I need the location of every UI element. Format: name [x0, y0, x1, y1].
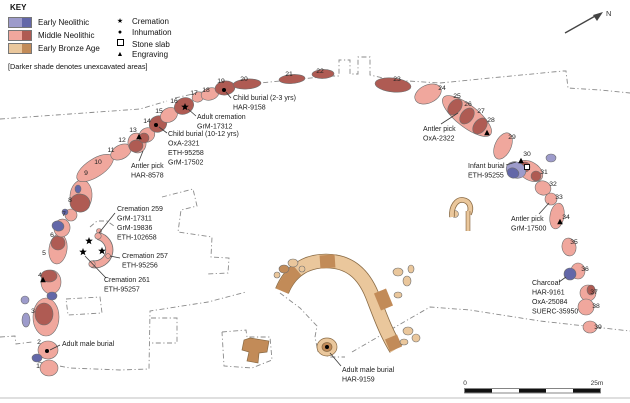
key-period-early-bronze-age: Early Bronze Age — [8, 43, 100, 54]
stone — [546, 154, 556, 162]
stone-number: 22 — [316, 68, 324, 75]
key-symbol-label: Engraving — [132, 50, 168, 59]
annotation-label: Cremation 257ETH-95256 — [122, 253, 168, 270]
stone-number: 15 — [155, 108, 163, 115]
stone-number: 1 — [36, 363, 40, 370]
trench-outline — [440, 71, 630, 93]
stone-number: 30 — [523, 151, 531, 158]
key-period-early-neolithic: Early Neolithic — [8, 17, 89, 28]
stone — [394, 292, 402, 298]
stone — [403, 276, 411, 286]
annotation-label: Infant burialETH-95255 — [468, 163, 505, 180]
inhumation-marker — [154, 123, 158, 127]
stone-number: 12 — [118, 137, 126, 144]
stone-number: 24 — [438, 85, 446, 92]
ring-terminal — [95, 233, 101, 239]
cremation-marker — [79, 248, 87, 255]
annotation-label: Child burial (10-12 yrs)OxA-2321ETH-9525… — [168, 131, 239, 167]
annotation-label: CharcoalHAR-9161OxA-25084SUERC-35950 — [532, 280, 578, 316]
stone — [288, 259, 298, 267]
stone-number: 29 — [508, 134, 516, 141]
stone-number: 4 — [38, 272, 42, 279]
trench-outline — [66, 297, 102, 315]
north-arrow — [565, 15, 597, 33]
trench-outline — [38, 292, 246, 370]
stone-number: 8 — [68, 197, 72, 204]
stone-number: 26 — [464, 101, 472, 108]
stone-number: 27 — [477, 108, 485, 115]
stone-number: 11 — [107, 147, 114, 154]
cremation-star-icon: ★ — [114, 18, 126, 26]
key-symbol-label: Stone slab — [132, 40, 170, 49]
key-period-label: Early Bronze Age — [38, 44, 100, 53]
scale-bar-segment — [519, 389, 546, 393]
stone-number: 35 — [570, 239, 578, 246]
stone — [47, 292, 57, 300]
stone-number: 28 — [487, 117, 495, 124]
stone — [40, 360, 58, 376]
stone-slab-icon — [114, 39, 126, 49]
key-symbol-label: Inhumation — [132, 28, 172, 37]
scale-bar-segment — [465, 389, 492, 393]
stone — [400, 339, 408, 345]
annotation-leader — [539, 203, 549, 214]
annotation-label: Cremation 261ETH-95257 — [104, 277, 150, 294]
stone — [393, 268, 403, 276]
stone-number: 25 — [453, 93, 461, 100]
trench-outline — [0, 101, 167, 119]
annotation-label: Adult male burial — [62, 341, 115, 348]
stone-number: 34 — [562, 214, 570, 221]
stone-number: 5 — [42, 250, 46, 257]
stone — [22, 313, 30, 327]
cremation-marker — [85, 237, 93, 244]
annotation-label: Cremation 259GrM-17311GrM-19836ETH-10265… — [117, 206, 163, 242]
key-title: KEY — [10, 3, 26, 12]
annotation-label: Adult male burialHAR-9159 — [342, 367, 395, 384]
stone-number: 31 — [540, 169, 548, 176]
stone — [21, 296, 29, 304]
stone-number: 18 — [202, 87, 210, 94]
stone-number: 14 — [143, 118, 151, 125]
key-symbol-label: Cremation — [132, 17, 169, 26]
stone-number: 16 — [170, 98, 178, 105]
annotation-leader — [559, 277, 566, 282]
stone-number: 36 — [581, 266, 589, 273]
ring-dot — [106, 254, 111, 259]
north-arrow-head — [593, 12, 603, 21]
inhumation-marker — [45, 349, 49, 353]
trench-outline — [90, 221, 114, 227]
scale-start-label: 0 — [463, 380, 467, 387]
trench-outline — [0, 336, 32, 344]
trench-outline — [151, 318, 177, 343]
stone — [564, 268, 576, 280]
key-period-label: Early Neolithic — [38, 18, 89, 27]
stone-number: 13 — [129, 127, 137, 134]
annotation-leader — [330, 353, 341, 366]
key-note: [Darker shade denotes unexcavated areas] — [8, 62, 148, 71]
stone — [412, 334, 420, 342]
key-symbol-stone-slab: Stone slab — [114, 39, 170, 49]
stone-number: 37 — [590, 289, 598, 296]
early-neolithic-swatch — [8, 17, 32, 28]
annotation-leader — [99, 213, 115, 233]
annotation-label: Antler pickHAR-8578 — [131, 163, 164, 180]
stone — [35, 303, 53, 325]
stone — [274, 272, 280, 278]
annotation-label: Child burial (2-3 yrs)HAR-9158 — [233, 95, 296, 112]
scale-end-label: 25m — [591, 380, 604, 387]
feature-polygon — [242, 338, 269, 363]
stone-number: 2 — [37, 339, 41, 346]
stone-slab-marker — [525, 165, 530, 170]
annotation-label: Adult cremationGrM-17312 — [197, 114, 246, 131]
bronze-age-bank-unexcavated — [320, 261, 335, 262]
stone — [32, 354, 42, 362]
north-label: N — [606, 9, 611, 18]
stone — [403, 327, 413, 335]
inhumation-dot-icon: ● — [114, 29, 126, 37]
scale-bar-segment — [573, 389, 600, 393]
stone — [279, 265, 289, 273]
early-bronze-age-swatch — [8, 43, 32, 54]
key-symbol-inhumation: ● Inhumation — [114, 28, 172, 37]
stone-number: 32 — [549, 181, 557, 188]
key-period-label: Middle Neolithic — [38, 31, 94, 40]
middle-neolithic-swatch — [8, 30, 32, 41]
trench-outline — [162, 189, 229, 274]
stone-number: 6 — [50, 232, 54, 239]
inhumation-marker — [325, 345, 329, 349]
stone — [75, 185, 81, 193]
stone-number: 3 — [31, 308, 35, 315]
inhumation-marker — [222, 88, 226, 92]
stone-number: 39 — [594, 324, 602, 331]
engraving-triangle-icon: ▲ — [114, 51, 126, 59]
stone-number: 10 — [94, 159, 102, 166]
stone-number: 23 — [393, 76, 401, 83]
stone — [299, 266, 305, 272]
key-legend: KEY Early Neolithic Middle Neolithic Ear… — [4, 2, 254, 80]
key-symbol-engraving: ▲ Engraving — [114, 50, 168, 59]
bronze-age-bank-unexcavated — [391, 337, 396, 349]
key-symbol-cremation: ★ Cremation — [114, 17, 169, 26]
stone-number: 38 — [592, 303, 600, 310]
stone-number: 7 — [62, 211, 66, 218]
site-plan-figure: Child burial (2-3 yrs)HAR-9158Adult crem… — [0, 0, 630, 403]
stone-number: 17 — [190, 90, 198, 97]
key-period-middle-neolithic: Middle Neolithic — [8, 30, 94, 41]
annotation-label: Antler pickOxA-2322 — [423, 126, 456, 143]
stone-number: 9 — [84, 170, 88, 177]
bronze-age-bank-unexcavated — [380, 291, 387, 308]
cremation-marker — [98, 247, 106, 254]
stone — [408, 265, 414, 273]
annotation-label: Antler pickGrM-17500 — [511, 216, 547, 233]
stone-number: 33 — [555, 194, 563, 201]
stone-number: 21 — [285, 71, 293, 78]
